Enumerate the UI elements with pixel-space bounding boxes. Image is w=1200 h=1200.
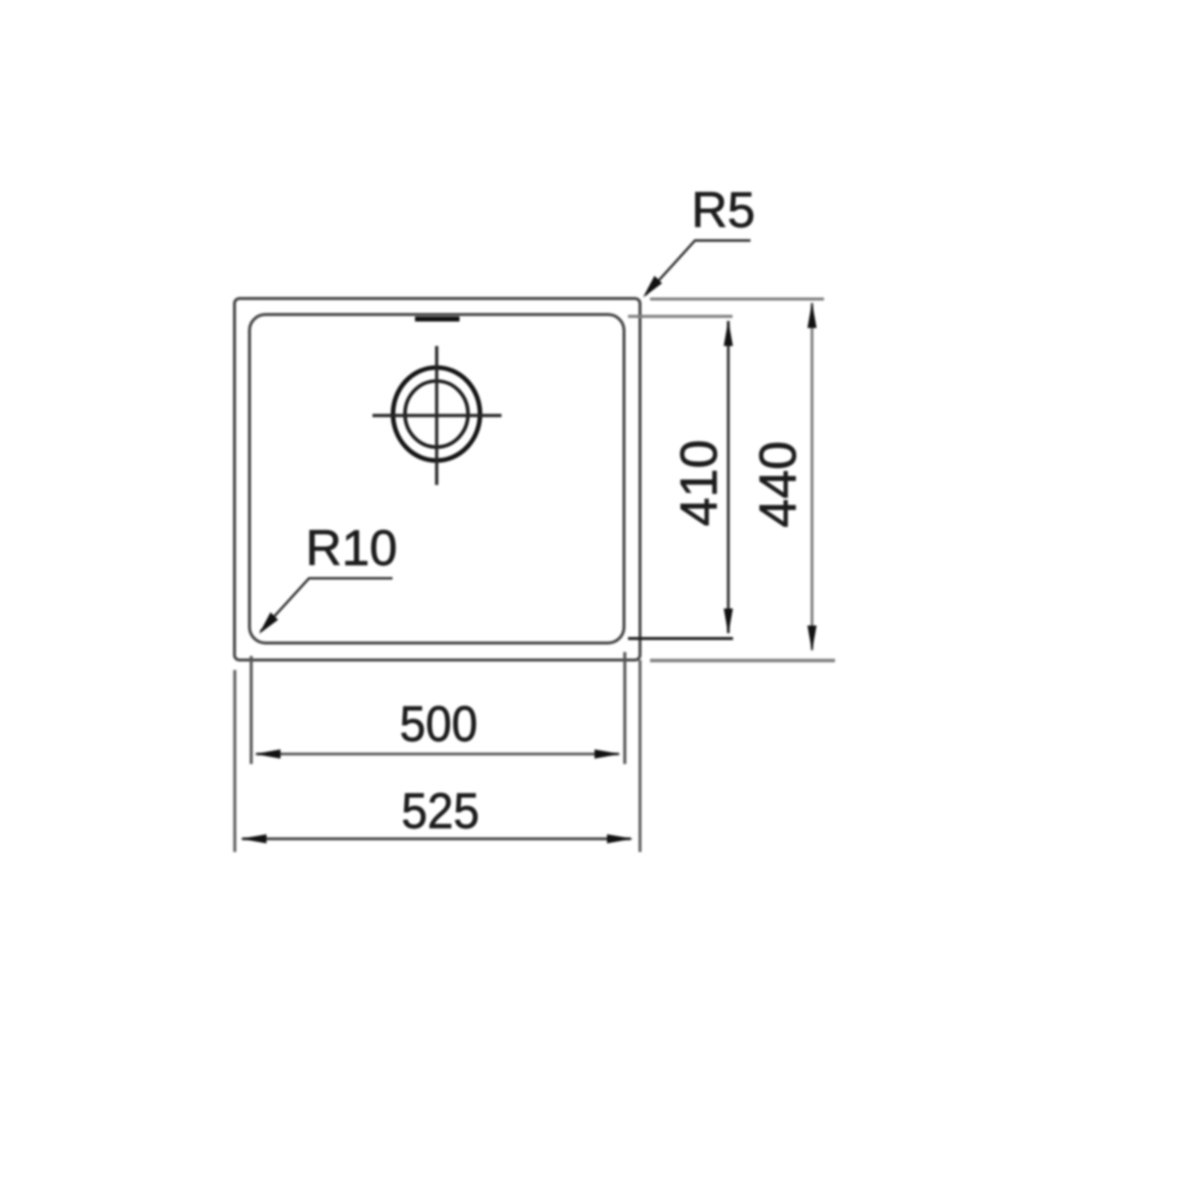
svg-text:500: 500 xyxy=(400,696,478,752)
svg-text:R5: R5 xyxy=(691,182,755,238)
svg-text:R10: R10 xyxy=(306,520,398,576)
svg-text:440: 440 xyxy=(750,441,808,528)
svg-text:410: 410 xyxy=(671,440,729,527)
svg-text:525: 525 xyxy=(401,783,479,839)
